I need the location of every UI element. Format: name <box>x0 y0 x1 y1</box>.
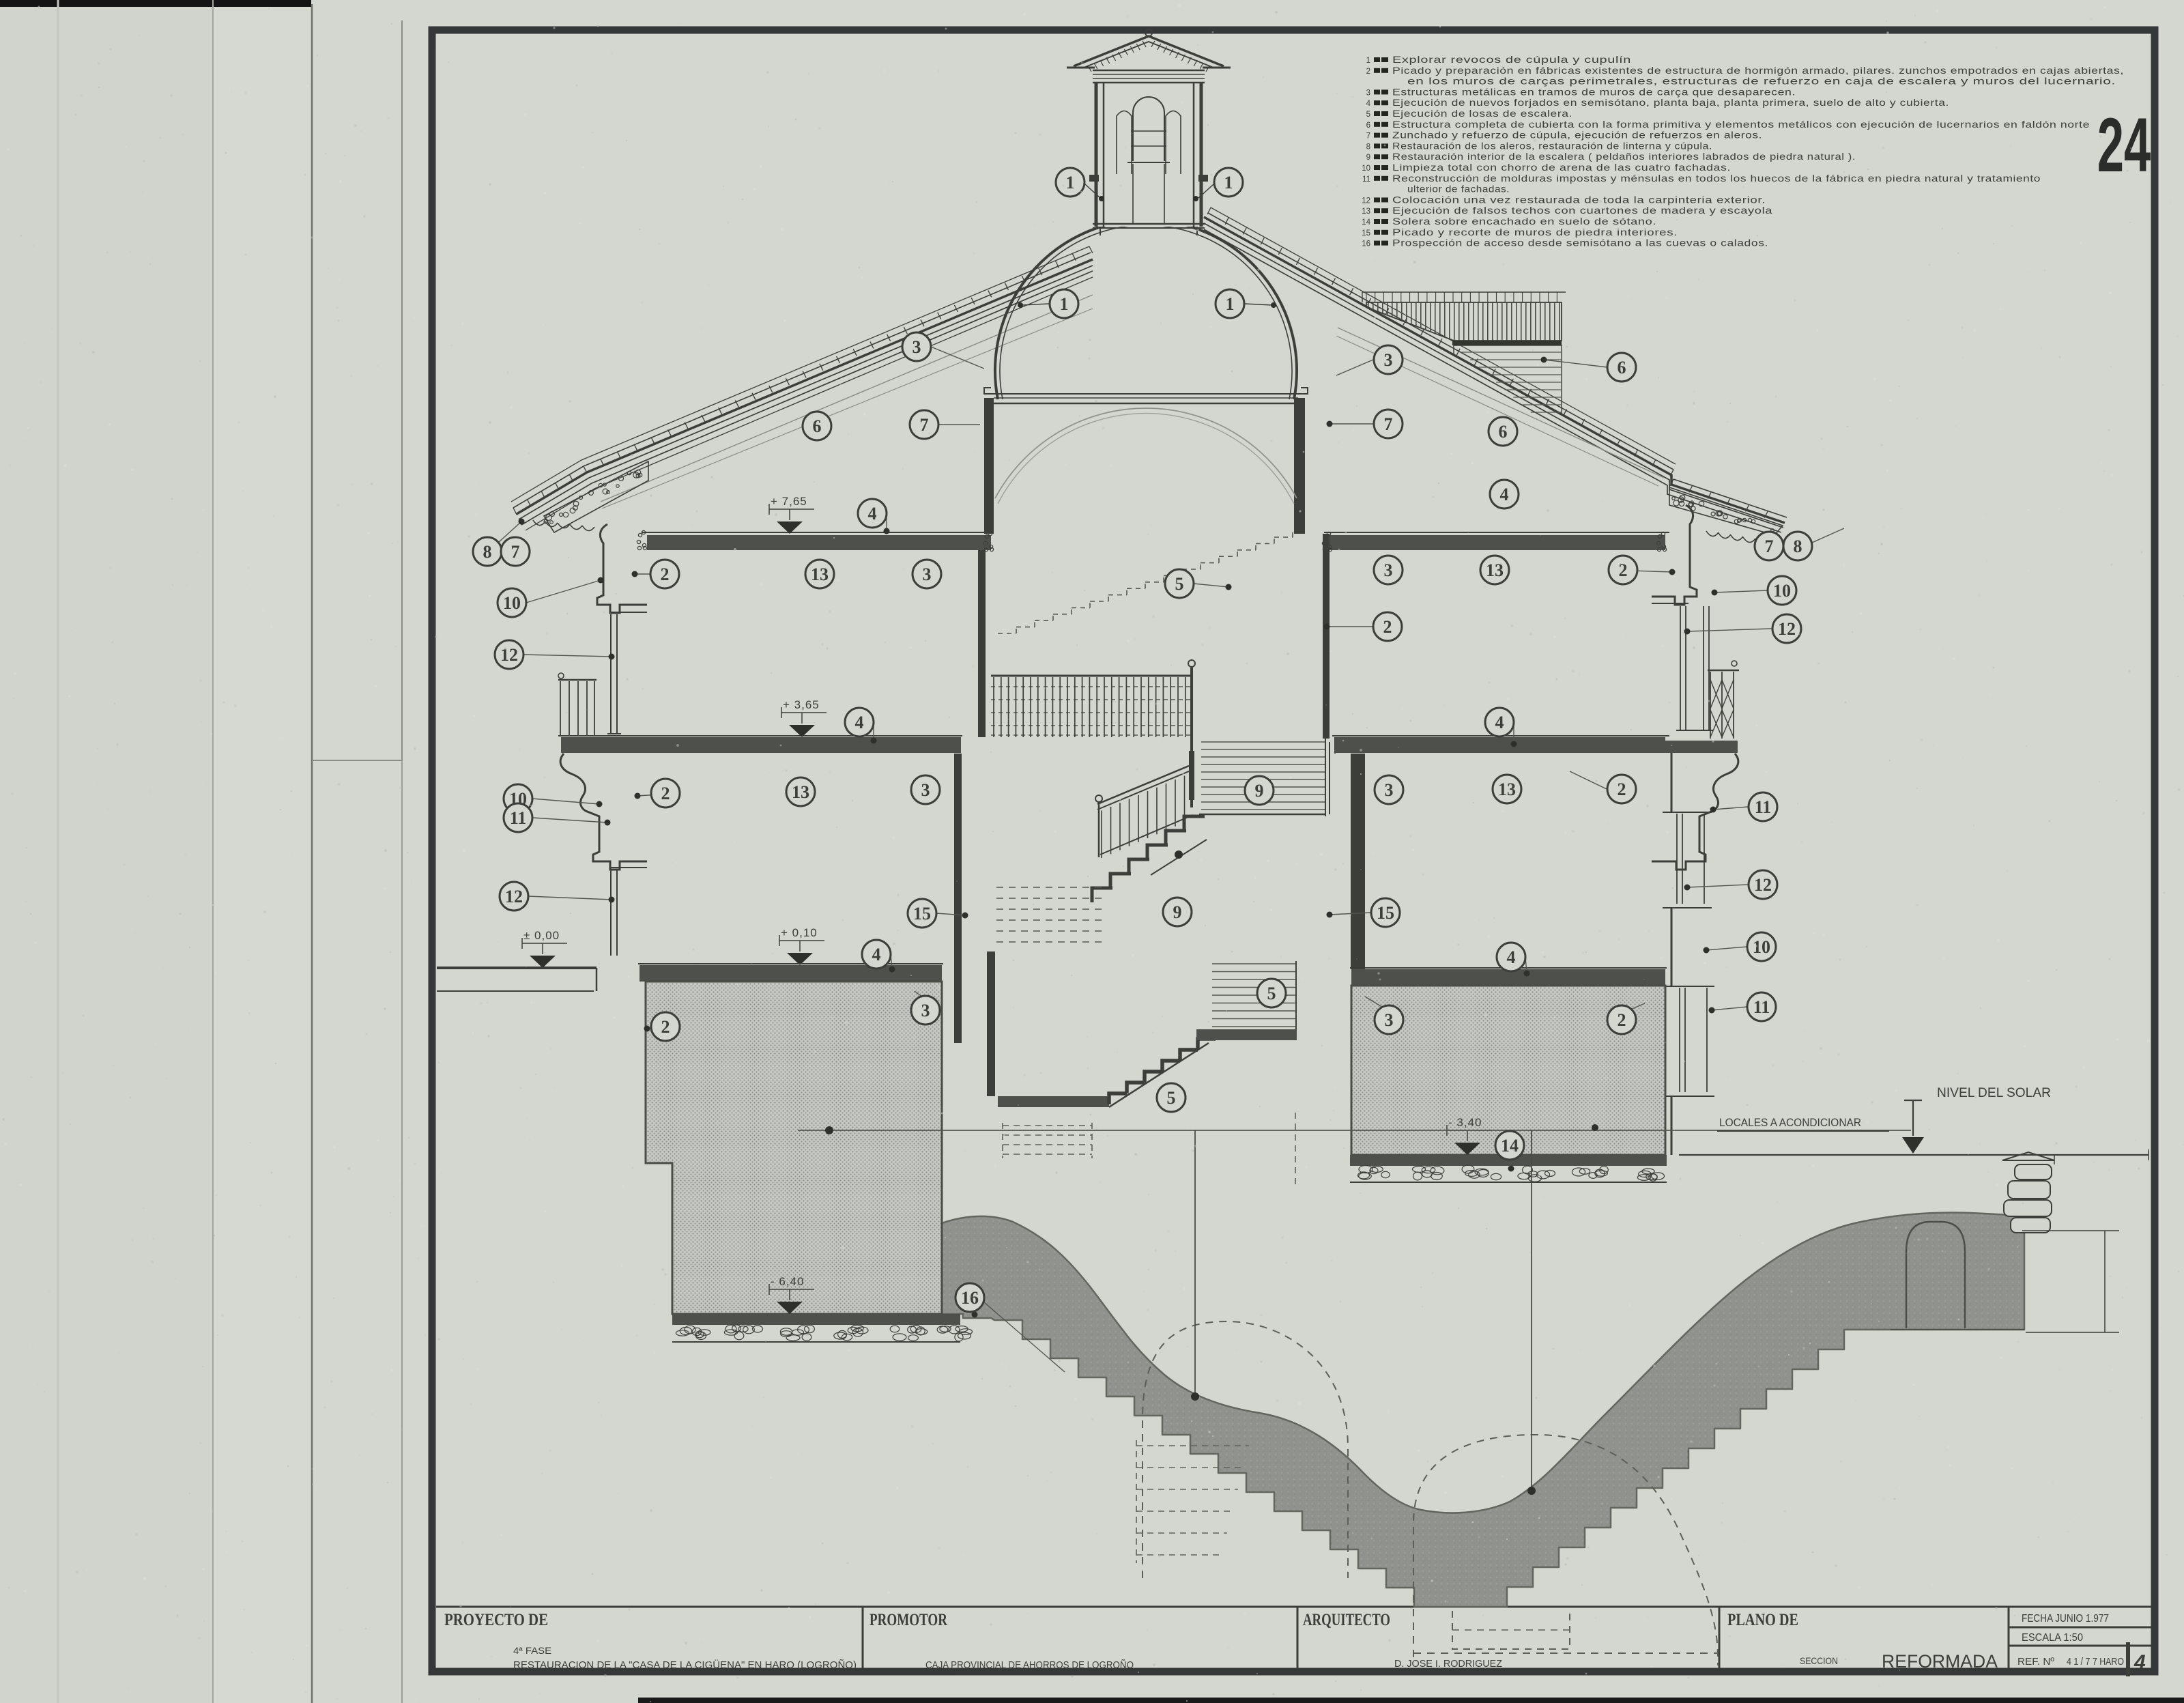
svg-text:6: 6 <box>1618 358 1626 377</box>
svg-text:Restauración interior de la: Restauración interior de la escalera ( p… <box>1392 152 1856 162</box>
svg-text:2: 2 <box>661 1017 670 1037</box>
svg-text:3: 3 <box>923 564 932 584</box>
svg-text:+ 0,10: + 0,10 <box>781 926 818 939</box>
svg-text:NIVEL DEL SOLAR: NIVEL DEL SOLAR <box>1937 1086 2051 1100</box>
svg-text:ulterior de fachadas.: ulterior de fachadas. <box>1407 184 1510 195</box>
svg-text:+ 7,65: + 7,65 <box>771 495 807 508</box>
svg-text:2: 2 <box>661 564 670 584</box>
svg-text:+ 3,65: + 3,65 <box>783 698 820 711</box>
svg-text:9: 9 <box>1366 154 1370 162</box>
svg-text:Ejecución de losas de esca: Ejecución de losas de escalera. <box>1392 109 1572 119</box>
svg-text:4: 4 <box>2133 1651 2146 1674</box>
svg-text:13: 13 <box>1362 207 1370 216</box>
svg-text:8: 8 <box>483 542 492 562</box>
svg-text:6: 6 <box>813 416 822 436</box>
svg-text:13: 13 <box>811 564 829 584</box>
svg-text:10: 10 <box>1362 164 1370 173</box>
svg-text:10: 10 <box>1773 581 1791 601</box>
svg-text:7: 7 <box>1765 536 1774 556</box>
svg-text:7: 7 <box>920 415 929 435</box>
svg-text:Picado y preparación en fá: Picado y preparación en fábricas existen… <box>1392 66 2124 76</box>
svg-text:Estructuras metálicas en tr: Estructuras metálicas en tramos de muros… <box>1392 87 1796 97</box>
svg-text:1: 1 <box>1366 57 1370 65</box>
svg-text:6: 6 <box>1366 121 1370 130</box>
svg-text:13: 13 <box>1486 560 1504 580</box>
svg-text:Zunchado y refuerzo de c: Zunchado y refuerzo de cúpula, ejecución… <box>1392 130 1762 141</box>
svg-text:1: 1 <box>1066 173 1075 192</box>
svg-text:3: 3 <box>1384 350 1393 370</box>
svg-text:FECHA JUNIO 1.977: FECHA JUNIO 1.977 <box>2022 1613 2109 1625</box>
svg-text:1: 1 <box>1060 294 1069 314</box>
svg-text:15: 15 <box>913 904 931 924</box>
svg-text:Ejecución de nuevos forjado: Ejecución de nuevos forjados en semisóta… <box>1392 98 1949 108</box>
svg-text:- 6,40: - 6,40 <box>771 1275 804 1288</box>
svg-text:Solera sobre encachado e: Solera sobre encachado en suelo de sótan… <box>1392 216 1656 227</box>
svg-text:2: 2 <box>1618 779 1626 799</box>
svg-text:RESTAURACION DE LA "CAS: RESTAURACION DE LA "CASA DE LA CIGÜENA" … <box>513 1659 857 1671</box>
svg-text:en los muros de carças pe: en los muros de carças perimetrales, est… <box>1407 76 2116 87</box>
svg-text:7: 7 <box>1384 414 1393 434</box>
svg-text:REF. Nº: REF. Nº <box>2017 1656 2055 1668</box>
svg-text:3: 3 <box>1385 780 1394 800</box>
svg-text:4: 4 <box>1500 485 1509 504</box>
svg-text:SECCION: SECCION <box>1800 1655 1838 1666</box>
svg-text:11: 11 <box>510 808 527 828</box>
svg-text:1: 1 <box>1224 173 1233 192</box>
svg-text:12: 12 <box>505 887 523 906</box>
svg-text:11: 11 <box>1755 797 1772 817</box>
svg-text:5: 5 <box>1167 1088 1176 1108</box>
svg-text:4 1 / 7 7 HARO: 4 1 / 7 7 HARO <box>2067 1656 2124 1668</box>
svg-text:2: 2 <box>1383 617 1392 637</box>
svg-text:LOCALES A ACONDICIONAR: LOCALES A ACONDICIONAR <box>1719 1116 1861 1129</box>
svg-text:2: 2 <box>661 784 670 803</box>
svg-text:4: 4 <box>868 504 877 524</box>
svg-text:12: 12 <box>1362 197 1370 205</box>
svg-text:Prospección de acceso desd: Prospección de acceso desde semisótano a… <box>1392 238 1768 248</box>
svg-text:5: 5 <box>1267 984 1276 1003</box>
svg-text:11: 11 <box>1362 175 1370 184</box>
svg-text:10: 10 <box>1753 937 1770 957</box>
svg-text:REFORMADA: REFORMADA <box>1882 1651 1998 1672</box>
svg-text:8: 8 <box>1794 536 1802 556</box>
svg-text:8: 8 <box>1366 143 1370 151</box>
svg-text:D. JOSE I. RODRIGUEZ: D. JOSE I. RODRIGUEZ <box>1394 1658 1502 1670</box>
svg-text:4: 4 <box>855 713 864 732</box>
svg-text:12: 12 <box>1778 619 1796 639</box>
svg-text:6: 6 <box>1499 422 1508 442</box>
svg-text:13: 13 <box>792 782 809 802</box>
svg-text:3: 3 <box>921 780 930 800</box>
svg-text:Reconstrucción de molduras: Reconstrucción de molduras impostas y mé… <box>1392 173 2041 184</box>
svg-text:1: 1 <box>1226 294 1235 314</box>
svg-text:14: 14 <box>1501 1136 1519 1156</box>
svg-text:4: 4 <box>1366 100 1371 108</box>
svg-text:11: 11 <box>1753 997 1770 1017</box>
svg-text:PROMOTOR: PROMOTOR <box>870 1611 948 1629</box>
svg-text:5: 5 <box>1175 574 1184 594</box>
svg-text:2: 2 <box>1366 68 1370 76</box>
svg-text:Ejecución de falsos techos: Ejecución de falsos techos con cuartones… <box>1392 205 1772 216</box>
svg-text:13: 13 <box>1498 779 1516 799</box>
svg-text:9: 9 <box>1255 781 1264 801</box>
svg-text:7: 7 <box>511 542 520 562</box>
svg-text:3: 3 <box>1366 89 1370 97</box>
svg-text:Colocación una vez restaur: Colocación una vez restaurada de toda la… <box>1392 195 1766 205</box>
svg-text:Picado y recorte de muros: Picado y recorte de muros de piedra inte… <box>1392 227 1678 238</box>
svg-text:Explorar revocos de cúpula: Explorar revocos de cúpula y cupulín <box>1392 55 1631 65</box>
svg-text:2: 2 <box>1618 1010 1626 1030</box>
svg-text:CAJA PROVINCIAL DE AHORR: CAJA PROVINCIAL DE AHORROS DE LOGROÑO <box>925 1659 1134 1671</box>
svg-text:4: 4 <box>1507 947 1516 967</box>
svg-text:9: 9 <box>1173 902 1182 922</box>
svg-text:ARQUITECTO: ARQUITECTO <box>1303 1611 1390 1629</box>
svg-text:4ª FASE: 4ª FASE <box>513 1645 551 1656</box>
svg-text:4: 4 <box>1495 713 1504 732</box>
svg-text:4: 4 <box>872 945 881 964</box>
svg-text:Restauración de los aleros,: Restauración de los aleros, restauración… <box>1392 141 1712 151</box>
svg-text:14: 14 <box>1362 218 1370 227</box>
svg-text:3: 3 <box>921 1001 930 1020</box>
svg-text:15: 15 <box>1377 903 1394 923</box>
svg-text:12: 12 <box>1754 875 1772 895</box>
svg-text:Limpieza total con chorr: Limpieza total con chorro de arena de la… <box>1392 162 1731 173</box>
svg-text:7: 7 <box>1366 132 1370 141</box>
svg-text:- 3,40: - 3,40 <box>1448 1116 1482 1129</box>
svg-text:Estructura completa de cubi: Estructura completa de cubierta con la f… <box>1392 119 2090 130</box>
svg-text:3: 3 <box>1385 1010 1394 1030</box>
svg-text:± 0,00: ± 0,00 <box>523 929 560 942</box>
svg-text:16: 16 <box>961 1288 979 1308</box>
svg-text:15: 15 <box>1362 229 1370 238</box>
svg-text:3: 3 <box>913 337 921 357</box>
svg-text:5: 5 <box>1366 111 1370 119</box>
svg-text:ESCALA 1:50: ESCALA 1:50 <box>2022 1632 2083 1644</box>
svg-text:24: 24 <box>2097 102 2151 188</box>
svg-text:12: 12 <box>500 645 518 665</box>
svg-text:2: 2 <box>1619 560 1628 580</box>
svg-text:16: 16 <box>1362 240 1370 248</box>
svg-text:PROYECTO DE: PROYECTO DE <box>444 1611 548 1629</box>
svg-text:10: 10 <box>503 593 521 613</box>
svg-text:3: 3 <box>1384 560 1393 580</box>
